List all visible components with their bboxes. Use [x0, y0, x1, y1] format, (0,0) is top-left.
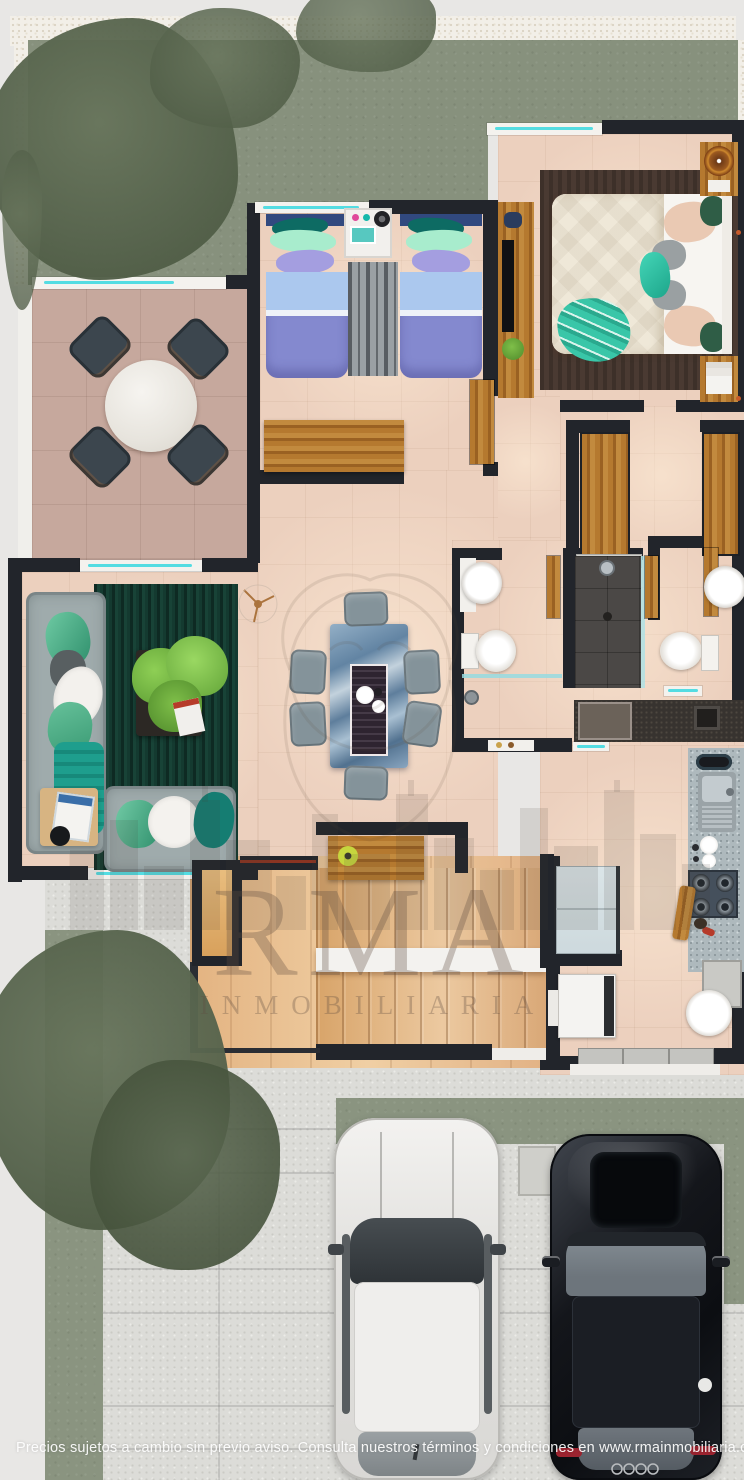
wall: [8, 866, 88, 880]
master-bed: [552, 194, 728, 354]
burner: [716, 874, 734, 892]
serving-dish: [696, 754, 732, 770]
bowl-dark: [374, 688, 382, 696]
entry-threshold: [492, 1048, 546, 1060]
dining-chair: [403, 649, 441, 695]
tree-canopy: [90, 1060, 280, 1270]
sink-drainer: [702, 806, 732, 828]
dining-table: [330, 624, 408, 768]
hood-crease: [380, 1132, 382, 1220]
dashboard: [566, 1232, 706, 1246]
wall: [247, 203, 260, 563]
stair-landing: [316, 948, 546, 972]
door-leaf: [470, 380, 494, 464]
window-terrace-north: [32, 277, 226, 289]
decor-dot-teal: [363, 214, 370, 221]
plant-small: [502, 338, 524, 360]
laundry-tub: [686, 990, 732, 1036]
ottoman-navy: [504, 212, 522, 228]
wall: [247, 470, 404, 484]
window-glass: [577, 745, 605, 748]
audi-rings-badge: [610, 1462, 662, 1476]
decor-dot-pink: [352, 214, 359, 221]
bath-niche: [488, 740, 534, 751]
condiment-dot: [692, 844, 699, 851]
decor-card: [708, 180, 730, 192]
candle-lime: [338, 846, 358, 866]
window-glass: [88, 564, 192, 567]
nightstand: [700, 142, 738, 196]
shower-glass: [462, 674, 562, 678]
ceiling-lamp-icon: [236, 582, 280, 626]
burner: [716, 898, 734, 916]
kitchen-counter: [688, 748, 744, 972]
condiment-dot: [693, 856, 699, 862]
wardrobe: [582, 434, 628, 554]
window-glass: [44, 281, 174, 284]
slider-divider: [622, 1048, 624, 1065]
wall: [316, 1044, 492, 1060]
wall: [226, 275, 260, 289]
stacked-books: [706, 362, 732, 394]
kids-nightstand: [344, 208, 392, 258]
shower-head: [601, 562, 613, 574]
pillow-white-round: [148, 796, 200, 848]
kids-bed: [266, 214, 348, 378]
decor-gong: [704, 146, 734, 176]
wall: [8, 558, 22, 882]
toilet-tank: [702, 636, 718, 670]
wall: [602, 120, 744, 134]
gas-stove: [688, 870, 738, 918]
door-leaf: [547, 556, 560, 618]
vanity-counter: [574, 700, 744, 742]
plate: [700, 836, 718, 854]
side-mirror: [712, 1256, 730, 1267]
wall: [566, 420, 579, 556]
vanity-tray: [580, 704, 630, 738]
door-sill: [570, 1064, 720, 1075]
plate: [356, 686, 374, 704]
floorplan-render: RMA INMOBILIARIA Precios sujetos a cambi…: [0, 0, 744, 1480]
headboard: [722, 194, 732, 354]
spice-spill: [694, 918, 707, 929]
toilet: [462, 630, 518, 672]
walk-in-shower: [575, 556, 641, 688]
window-bath-south: [664, 686, 702, 696]
burner: [692, 898, 710, 916]
door-leaf: [645, 556, 658, 618]
entry-closet-interior: [202, 870, 232, 956]
washer-controls: [604, 976, 614, 1036]
toilet-bowl: [476, 630, 516, 672]
bath-sink-round: [704, 566, 744, 608]
side-mirror: [490, 1244, 506, 1255]
duvet: [266, 316, 348, 378]
wall: [732, 536, 744, 700]
plate: [702, 854, 716, 868]
wall: [700, 420, 744, 432]
wall: [483, 200, 498, 396]
side-glass: [342, 1234, 350, 1414]
shower-head: [466, 692, 477, 703]
door-hinge-accent: [736, 230, 741, 235]
legal-caption: Precios sujetos a cambio sin previo avis…: [16, 1440, 742, 1456]
toilet: [660, 630, 720, 672]
wall: [560, 400, 644, 412]
wall: [714, 1048, 744, 1064]
wall: [202, 558, 258, 572]
car-black-sedan: [550, 1128, 724, 1480]
wall: [483, 462, 498, 476]
bath-sink-round: [462, 562, 502, 604]
washing-machine: [558, 974, 616, 1038]
window-living-north: [80, 560, 202, 571]
refrigerator: [556, 866, 620, 954]
plate: [372, 700, 385, 713]
grass-strip-right: [724, 1144, 744, 1304]
window-hall-south: [573, 742, 609, 751]
dining-chair: [289, 649, 327, 695]
car-roof: [572, 1296, 700, 1428]
wardrobe: [704, 434, 738, 554]
dining-chair: [343, 765, 388, 801]
media-console: [498, 202, 534, 398]
side-mirror: [542, 1256, 560, 1267]
kids-bed: [400, 214, 482, 378]
vanity-sink-square: [694, 706, 720, 730]
door-track-accent: [240, 860, 316, 863]
stair-half-wall: [455, 835, 468, 873]
windshield: [566, 1232, 706, 1296]
kids-bench: [264, 420, 404, 472]
car-roof: [354, 1282, 480, 1432]
toilet-bowl: [660, 632, 702, 670]
side-mirror: [328, 1244, 344, 1255]
car-white-suv: [334, 1114, 500, 1480]
tree-canopy: [150, 8, 300, 128]
bottle: [496, 742, 502, 748]
window-glass: [495, 127, 593, 130]
fridge-seam: [556, 908, 616, 910]
kids-rug-runner: [348, 262, 398, 376]
nightstand: [700, 356, 738, 402]
bottle: [508, 742, 514, 748]
decor-bowl: [50, 826, 70, 846]
duvet: [400, 316, 482, 378]
speaker-round: [374, 211, 390, 227]
dining-chair: [401, 700, 443, 749]
wall: [563, 548, 575, 688]
windshield: [350, 1218, 484, 1284]
gas-cap-highlight: [698, 1378, 712, 1392]
stair-half-wall: [316, 822, 468, 835]
terrace-ledge: [18, 285, 32, 562]
sunroof: [590, 1152, 682, 1228]
sliding-door: [578, 1048, 714, 1065]
dining-chair: [289, 701, 327, 747]
console-shelf: [328, 836, 424, 880]
side-glass: [484, 1234, 492, 1414]
wall: [240, 856, 318, 870]
dining-chair: [343, 591, 388, 627]
shower-drain: [603, 612, 612, 621]
kitchen-sink: [698, 772, 736, 832]
hood-crease: [452, 1132, 454, 1220]
window-master-north: [487, 123, 602, 135]
tv-flatscreen: [502, 240, 514, 332]
slider-divider: [668, 1048, 670, 1065]
door-niche: [548, 990, 558, 1026]
photo-frame: [352, 228, 374, 242]
wall: [22, 558, 80, 572]
faucet: [726, 788, 734, 796]
door-hinge-accent: [736, 396, 741, 401]
window-glass: [668, 689, 698, 692]
